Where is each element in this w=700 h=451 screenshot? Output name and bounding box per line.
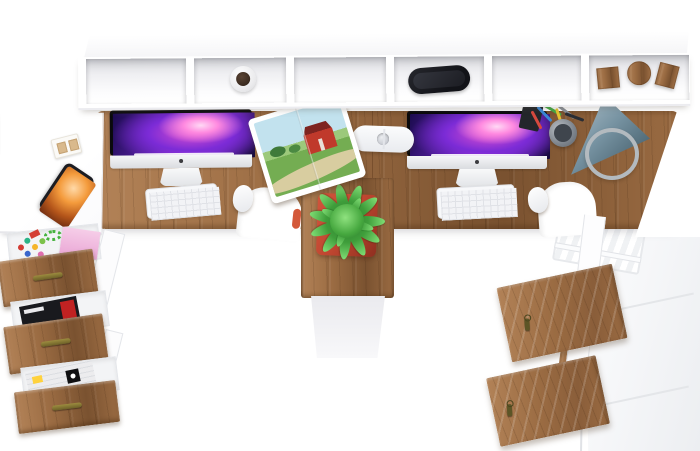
mug <box>230 66 256 92</box>
tree <box>269 145 287 159</box>
apple-logo-icon <box>179 159 183 163</box>
card-chip <box>68 138 79 151</box>
wall-shelf <box>72 0 693 116</box>
tree <box>288 143 302 154</box>
keyboard-right <box>436 184 516 219</box>
imac-chin <box>110 154 252 168</box>
magazine-text-block <box>24 306 44 314</box>
imac-screen <box>110 109 252 155</box>
drawer-unit <box>0 226 140 441</box>
desk-lamp-base-ring <box>585 128 639 180</box>
door-key <box>507 404 513 416</box>
cubby-magazines <box>86 58 186 104</box>
wooden-cylinder <box>627 61 651 85</box>
card-holder <box>50 133 82 159</box>
smartphone <box>38 161 96 225</box>
power-strip <box>352 125 415 153</box>
apple-logo-icon <box>475 160 479 164</box>
keyboard-left <box>145 183 219 219</box>
headphones-band <box>413 70 466 90</box>
imac-left <box>110 109 253 188</box>
cubby-mug <box>194 58 286 104</box>
cubby-book-row <box>294 57 386 103</box>
render-stage <box>0 0 700 451</box>
smartphone-screen <box>38 165 96 229</box>
plant-core <box>330 204 364 238</box>
yellow-sticker <box>32 375 43 384</box>
book-row <box>300 63 380 99</box>
magazine-stack <box>93 63 178 100</box>
headphones <box>407 64 471 95</box>
cubby-wooden-blocks <box>589 55 689 101</box>
logo-dot <box>70 373 76 379</box>
door-key <box>524 318 530 330</box>
imac-stand <box>159 168 203 186</box>
keyboard-keys <box>440 188 517 221</box>
pen-cup-interior <box>554 124 572 142</box>
pen-cup <box>549 119 577 147</box>
cubby-headphones <box>394 56 484 102</box>
pedestal-front <box>306 296 390 358</box>
card-chip <box>56 141 67 154</box>
toy-squiggle <box>43 229 62 242</box>
book-stack <box>506 65 567 95</box>
drawer-handle <box>33 272 63 281</box>
side-table <box>0 111 104 234</box>
desk-corner-cut <box>632 107 700 237</box>
power-strip-seam <box>383 129 386 149</box>
cubby-book-stack <box>492 56 581 102</box>
imac-wallpaper <box>113 112 255 158</box>
wooden-cube-tilted <box>655 62 680 89</box>
wooden-cube <box>596 66 620 89</box>
barn-door <box>317 138 325 151</box>
imac-chin <box>407 156 547 169</box>
mug-interior <box>236 72 250 86</box>
drawer-handle <box>52 402 82 411</box>
drawer-handle <box>41 338 71 347</box>
shelf-body <box>78 53 690 110</box>
newspaper-logo <box>65 368 80 383</box>
shelf-top-panel <box>72 0 692 58</box>
